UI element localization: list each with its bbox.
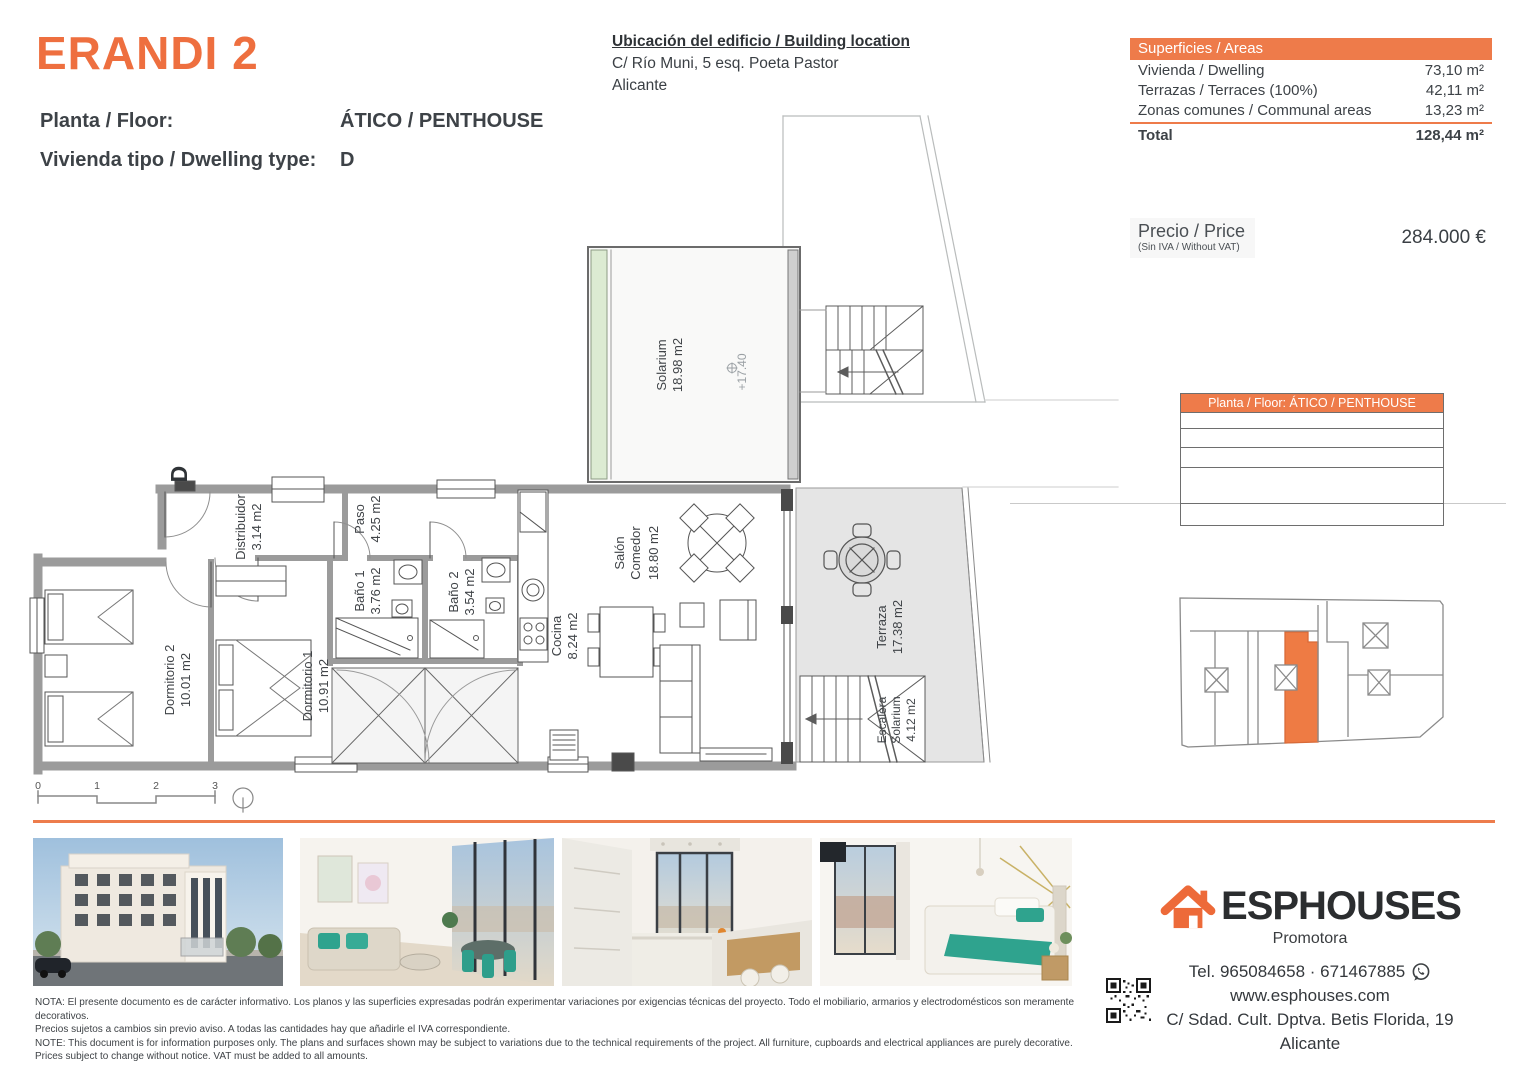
label-salon: Salón xyxy=(612,536,627,569)
label-paso: Paso xyxy=(352,504,367,534)
areas-row-terraces: Terrazas / Terraces (100%) 42,11 m² xyxy=(1130,80,1492,100)
price-block: Precio / Price (Sin IVA / Without VAT) 2… xyxy=(1130,218,1492,258)
floor-table-row xyxy=(1180,429,1444,448)
label-type-letter: D xyxy=(166,466,192,483)
scale-tick-1: 1 xyxy=(94,780,100,792)
areas-value: 42,11 m² xyxy=(1426,82,1484,99)
roof-outline xyxy=(770,116,1118,487)
label-bano1: Baño 1 xyxy=(352,570,367,611)
label-escalera2: Solarium xyxy=(889,696,903,743)
scale-bar xyxy=(38,791,215,803)
floor-table-row xyxy=(1180,413,1444,429)
label-paso-area: 4.25 m2 xyxy=(368,496,383,543)
label-cocina-area: 8.24 m2 xyxy=(565,613,580,660)
house-logo-icon xyxy=(1159,882,1217,930)
location-title: Ubicación del edificio / Building locati… xyxy=(612,33,910,51)
brochure-page: ERANDI 2 Planta / Floor: ÁTICO / PENTHOU… xyxy=(0,0,1527,1080)
label-escalera: Escalera xyxy=(875,696,889,743)
scale-tick-0: 0 xyxy=(35,780,41,792)
whatsapp-icon xyxy=(1411,962,1431,982)
phone-line: Tel. 965084658 · 671467885 xyxy=(1100,962,1520,982)
developer-footer: ESPHOUSES Promotora Tel. 965084658 · 671… xyxy=(1100,882,1520,1054)
price-label: Precio / Price xyxy=(1138,221,1245,242)
areas-value: 13,23 m² xyxy=(1425,102,1484,119)
areas-total-label: Total xyxy=(1138,127,1173,144)
brand-subtitle: Promotora xyxy=(1100,930,1520,948)
scale-tick-2: 2 xyxy=(153,780,159,792)
scale-tick-3: 3 xyxy=(212,780,218,792)
photo-building-exterior xyxy=(33,838,283,986)
label-distribuidor-area: 3.14 m2 xyxy=(249,504,264,551)
qr-code xyxy=(1106,978,1151,1023)
photo-kitchen xyxy=(562,838,812,986)
label-dormitorio2: Dormitorio 2 xyxy=(162,645,177,716)
label-salon2: Comedor xyxy=(628,526,643,580)
areas-table: Superficies / Areas Vivienda / Dwelling … xyxy=(1130,38,1492,147)
bed-dormitorio1 xyxy=(216,566,311,736)
note-line-3: NOTE: This document is for information p… xyxy=(35,1037,1105,1051)
solarium-stairs xyxy=(800,306,923,394)
photo-living-room xyxy=(300,838,554,986)
floor-plan: Solarium 18.98 m2 +17.40 Distribuidor 3.… xyxy=(20,100,1120,820)
areas-row-communal: Zonas comunes / Communal areas 13,23 m² xyxy=(1130,100,1492,120)
label-bano1-area: 3.76 m2 xyxy=(368,568,383,615)
areas-total-row: Total 128,44 m² xyxy=(1130,122,1492,147)
price-sublabel: (Sin IVA / Without VAT) xyxy=(1138,242,1245,253)
floor-table-row xyxy=(1180,448,1444,468)
website-line: www.esphouses.com xyxy=(1100,986,1520,1006)
label-bano2: Baño 2 xyxy=(446,571,461,612)
label-salon-area: 18.80 m2 xyxy=(646,526,661,580)
project-title: ERANDI 2 xyxy=(36,26,259,80)
note-line-4: Prices subject to change without notice.… xyxy=(35,1050,1105,1064)
areas-value: 73,10 m² xyxy=(1425,62,1484,79)
label-distribuidor: Distribuidor xyxy=(233,493,248,559)
floor-table-row xyxy=(1180,468,1444,504)
price-label-block: Precio / Price (Sin IVA / Without VAT) xyxy=(1130,218,1255,258)
site-key-plan xyxy=(1175,572,1520,777)
label-dormitorio1-area: 10.91 m2 xyxy=(316,659,331,713)
label-escalera-area: 4.12 m2 xyxy=(904,698,918,742)
north-arrow-icon xyxy=(233,788,253,812)
note-line-2: Precios sujetos a cambios sin previo avi… xyxy=(35,1023,1105,1037)
floor-table-row xyxy=(1180,504,1444,526)
solarium-area xyxy=(588,247,800,482)
solarium-planter xyxy=(591,250,607,479)
photo-bedroom xyxy=(820,838,1072,986)
label-dormitorio2-area: 10.01 m2 xyxy=(178,653,193,707)
label-terraza-area: 17.38 m2 xyxy=(890,600,905,654)
label-cocina: Cocina xyxy=(549,615,564,656)
note-line-1: NOTA: El presente documento es de caráct… xyxy=(35,996,1105,1023)
label-dormitorio1: Dormitorio 1 xyxy=(300,651,315,722)
disclaimer-notes: NOTA: El presente documento es de caráct… xyxy=(35,996,1105,1064)
areas-row-dwelling: Vivienda / Dwelling 73,10 m² xyxy=(1130,60,1492,80)
phone-numbers: Tel. 965084658 · 671467885 xyxy=(1189,962,1405,982)
label-solarium: Solarium xyxy=(654,339,669,390)
areas-label: Vivienda / Dwelling xyxy=(1138,62,1264,79)
address-line: C/ Sdad. Cult. Dptva. Betis Florida, 19 xyxy=(1100,1010,1520,1030)
label-solarium-area: 18.98 m2 xyxy=(670,338,685,392)
location-city: Alicante xyxy=(612,77,910,95)
price-value: 284.000 € xyxy=(1401,227,1492,249)
city-line: Alicante xyxy=(1100,1034,1520,1054)
label-terraza: Terraza xyxy=(874,605,889,649)
building-location-block: Ubicación del edificio / Building locati… xyxy=(612,33,910,95)
areas-header: Superficies / Areas xyxy=(1130,38,1492,60)
areas-label: Terrazas / Terraces (100%) xyxy=(1138,82,1318,99)
section-divider xyxy=(33,820,1495,823)
areas-total-value: 128,44 m² xyxy=(1416,127,1484,144)
label-bano2-area: 3.54 m2 xyxy=(462,569,477,616)
brand-name: ESPHOUSES xyxy=(1221,884,1461,929)
floor-table-header: Planta / Floor: ÁTICO / PENTHOUSE xyxy=(1180,393,1444,413)
patio-void xyxy=(332,668,518,763)
floor-selector-table: Planta / Floor: ÁTICO / PENTHOUSE xyxy=(1180,393,1444,526)
label-level-mark: +17.40 xyxy=(735,353,749,390)
areas-label: Zonas comunes / Communal areas xyxy=(1138,102,1371,119)
salon-glazing xyxy=(781,489,793,764)
beds-dormitorio2 xyxy=(45,590,133,746)
esphouses-logo: ESPHOUSES xyxy=(1100,882,1520,930)
location-address: C/ Río Muni, 5 esq. Poeta Pastor xyxy=(612,55,910,73)
